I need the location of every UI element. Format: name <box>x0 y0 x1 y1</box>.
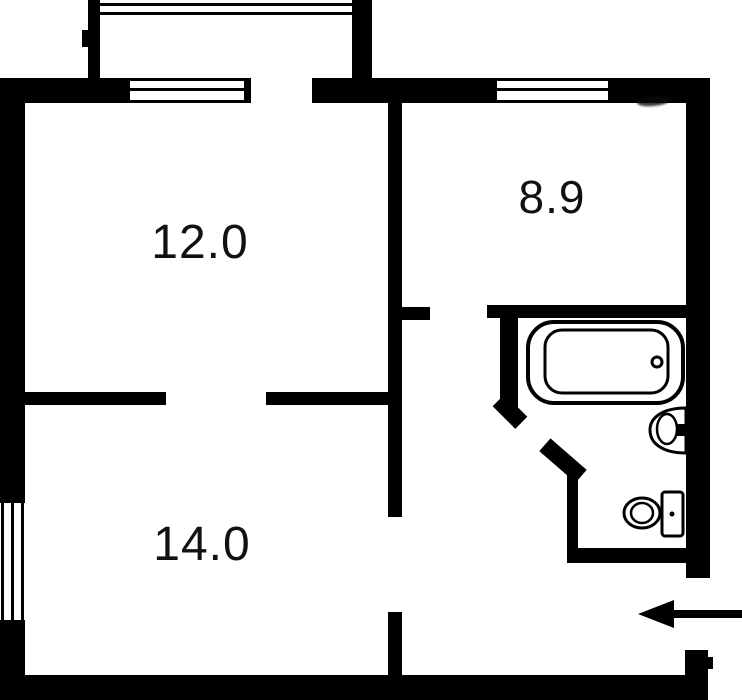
bathtub-icon <box>528 322 683 403</box>
sink-icon <box>650 408 687 453</box>
floor-plan: 12.0 8.9 14.0 <box>0 0 742 700</box>
fixtures-layer <box>0 0 742 700</box>
toilet-icon <box>624 492 683 536</box>
entrance-arrow-icon <box>638 600 742 628</box>
room-8-9-area-label: 8.9 <box>472 174 632 220</box>
room-14-area-label: 14.0 <box>122 521 282 569</box>
room-12-area-label: 12.0 <box>120 219 280 267</box>
